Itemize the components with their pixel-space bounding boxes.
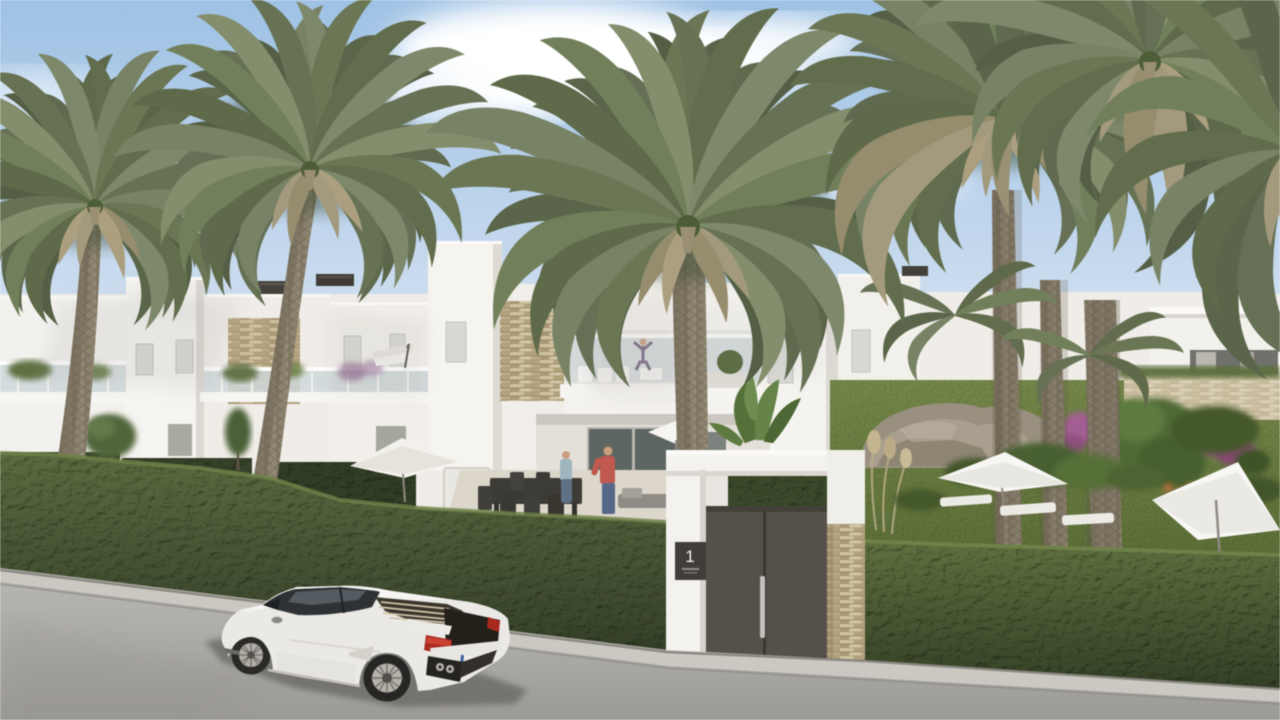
svg-text:1: 1 bbox=[685, 547, 694, 566]
